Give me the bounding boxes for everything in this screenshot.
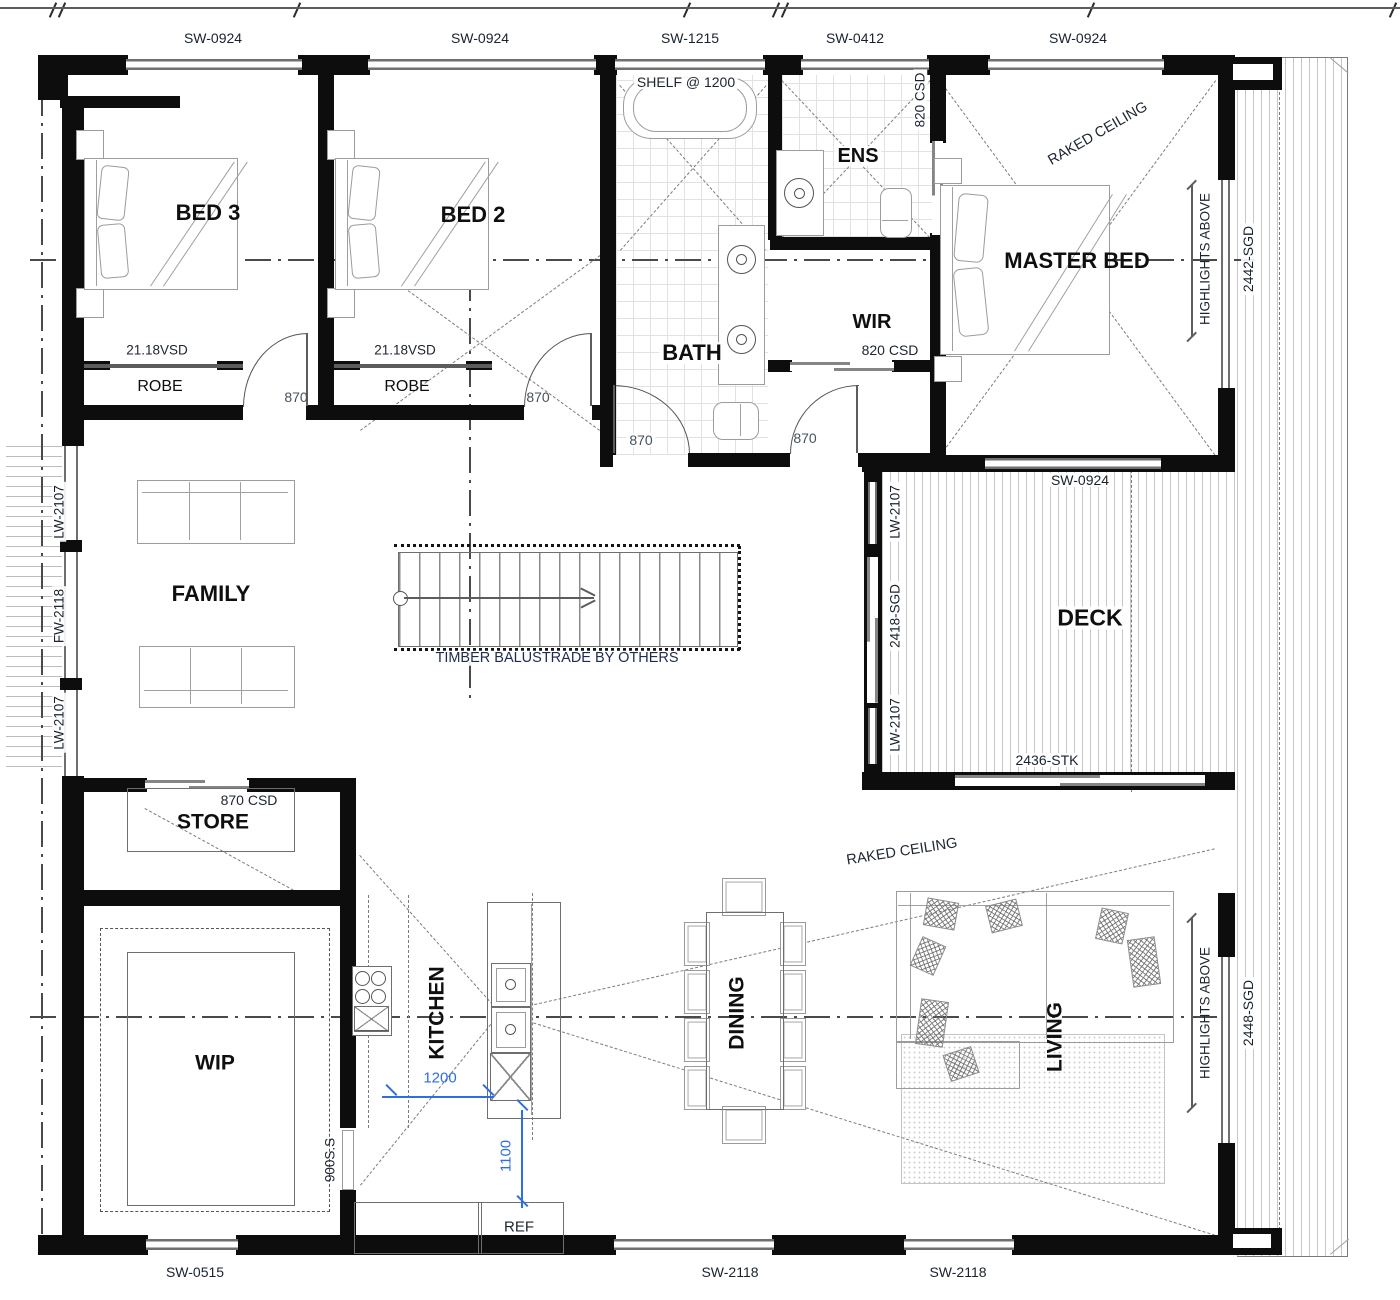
survey-tick <box>781 2 789 17</box>
deck-roofline <box>1131 460 1132 792</box>
basin-drain <box>736 254 747 265</box>
door-label: 820 CSD <box>913 70 927 131</box>
wall <box>930 75 946 143</box>
ss-bench-900 <box>342 1130 354 1190</box>
burner <box>355 971 370 986</box>
highlights-label: HIGHLIGHTS ABOVE <box>1198 193 1212 325</box>
sofa-back-line <box>142 492 288 493</box>
wall <box>1012 1235 1235 1255</box>
room-label-master: MASTER BED <box>1004 250 1149 272</box>
window-label: 2448-SGD <box>1241 977 1255 1049</box>
room-label-store: STORE <box>177 812 249 833</box>
dining-chair <box>722 878 766 916</box>
window-sw0515 <box>146 1239 238 1250</box>
door-label: 870 <box>626 433 655 447</box>
wall <box>770 237 934 250</box>
dim-line-1200 <box>382 1096 494 1098</box>
kitchen-bench <box>354 1202 482 1254</box>
wall <box>768 360 792 372</box>
door-leaf <box>856 385 858 453</box>
stacker-2436stk <box>955 775 1205 786</box>
window-lw2107-deck2 <box>868 708 877 764</box>
door-label: 820 CSD <box>862 343 919 357</box>
cooktop-front <box>354 1030 388 1031</box>
shelf-label: SHELF @ 1200 <box>634 75 738 89</box>
bedside-table <box>327 288 355 318</box>
window-sw1215 <box>615 59 765 70</box>
window-sw0924-3 <box>988 59 1164 70</box>
room-label-ens: ENS <box>834 146 881 166</box>
bedside-table <box>327 130 355 160</box>
raked-ceiling-label: RAKED CEILING <box>846 836 959 868</box>
wall <box>334 405 524 420</box>
survey-tick <box>772 2 780 17</box>
pillow <box>953 193 989 263</box>
vsd-label: 21.18VSD <box>126 343 188 357</box>
balustrade-end <box>738 546 741 650</box>
robe-label: ROBE <box>384 379 429 395</box>
floor-plan: BED 3 BED 2 BATH ENS WIR MASTER BED FAMI… <box>0 0 1400 1300</box>
ss-bench-label: 900S.S <box>323 1138 337 1182</box>
raked-ceiling-label: RAKED CEILING <box>1046 100 1150 169</box>
window-label: LW-2107 <box>888 695 902 755</box>
cooktop-oven <box>354 1006 389 1032</box>
sink-drain <box>505 979 516 990</box>
window-label: SW-2118 <box>701 1265 758 1279</box>
dim-line-1100 <box>521 1110 523 1208</box>
toilet-seat-line <box>882 220 908 221</box>
slider-2418sgd <box>867 557 878 703</box>
survey-tick <box>58 2 66 17</box>
room-label-kitchen: KITCHEN <box>427 966 448 1059</box>
wall <box>688 453 770 467</box>
window-label: LW-2107 <box>52 482 66 542</box>
room-label-family: FAMILY <box>172 583 251 605</box>
window-label: SW-0924 <box>184 31 242 45</box>
bedside-table <box>934 356 962 382</box>
dim-tick <box>386 1084 398 1096</box>
window-label: 2418-SGD <box>888 581 902 651</box>
wall <box>298 55 370 75</box>
window-sw2118-2 <box>904 1239 1014 1250</box>
window-sw2118-1 <box>614 1239 774 1250</box>
balustrade-note: TIMBER BALUSTRADE BY OTHERS <box>432 651 681 666</box>
window-label: SW-0924 <box>451 31 509 45</box>
window-label: SW-0924 <box>1048 473 1112 487</box>
door-leaf <box>613 385 615 453</box>
window-label: FW-2118 <box>52 586 66 646</box>
door-leaf <box>590 333 592 406</box>
door-label: 870 <box>793 431 816 445</box>
room-label-bath: BATH <box>659 342 724 364</box>
bed-headline <box>96 160 97 286</box>
bedside-table <box>76 288 104 318</box>
window-label: 2436-STK <box>1012 753 1081 767</box>
stair-arrow <box>404 597 594 599</box>
burner <box>371 989 386 1004</box>
window-label: SW-0515 <box>166 1265 224 1279</box>
sofa-back-line <box>144 690 288 691</box>
toilet-ens <box>880 188 912 238</box>
window-label: 2442-SGD <box>1241 223 1255 295</box>
sink-drain <box>505 1024 516 1035</box>
wall <box>763 55 803 75</box>
wall <box>38 55 68 100</box>
wall <box>927 55 990 75</box>
wall-sill <box>60 678 82 690</box>
wall <box>892 360 934 372</box>
sofa-divider <box>190 648 191 704</box>
wall <box>772 1235 906 1255</box>
wall <box>594 55 617 75</box>
wall <box>1218 893 1235 957</box>
basin-drain <box>736 334 747 345</box>
window-sw0412 <box>801 59 929 70</box>
window-sw0924-1 <box>126 59 302 70</box>
pillow <box>96 165 129 222</box>
wall <box>62 890 354 906</box>
room-label-wir: WIR <box>853 312 892 332</box>
family-sofa <box>139 646 295 708</box>
toilet-cistern <box>740 404 741 436</box>
window-label: LW-2107 <box>888 482 902 542</box>
wall <box>318 75 334 363</box>
wall <box>1218 388 1235 460</box>
pillow <box>348 223 381 279</box>
window-2442sgd <box>1221 180 1230 388</box>
burner <box>355 989 370 1004</box>
room-label-wip: WIP <box>195 1053 235 1074</box>
pillow <box>347 165 380 222</box>
bed-headline <box>952 187 953 351</box>
sofa-divider <box>240 482 241 540</box>
highlights-label: HIGHLIGHTS ABOVE <box>1198 947 1212 1079</box>
room-label-bed2: BED 2 <box>441 204 506 226</box>
dishwasher <box>490 1053 531 1101</box>
pier-inset <box>1233 64 1273 80</box>
room-label-dining: DINING <box>727 976 748 1050</box>
balustrade-top <box>394 544 740 547</box>
window-label: SW-0412 <box>826 31 884 45</box>
survey-tick <box>49 2 57 17</box>
window-label: SW-2118 <box>929 1265 986 1279</box>
wall <box>62 776 84 1238</box>
room-label-bed3: BED 3 <box>176 202 241 224</box>
kitchen-bench-line <box>408 895 409 1128</box>
pier-inset <box>1233 1234 1271 1248</box>
survey-tick <box>1087 2 1095 17</box>
cavity-slider-820-wir <box>790 362 894 371</box>
survey-line <box>0 7 1400 9</box>
highlight-bracket <box>1191 918 1193 1108</box>
wip-bench <box>127 952 295 1206</box>
bed-headline <box>347 160 348 286</box>
robe-vsd-track <box>334 364 492 368</box>
eave-line-left <box>41 90 43 1235</box>
dim-label-1100: 1100 <box>499 1140 514 1172</box>
door-label: 870 CSD <box>221 793 278 807</box>
island-divider <box>531 904 532 1115</box>
wall <box>306 405 334 420</box>
burner <box>371 971 386 986</box>
room-label-deck: DECK <box>1054 607 1125 630</box>
wall-sill <box>60 540 82 552</box>
door-label: 870 <box>284 390 307 404</box>
cushion <box>923 897 959 930</box>
bedside-table <box>76 130 104 160</box>
vsd-label: 21.18VSD <box>374 343 436 357</box>
window-sw0924-deck <box>985 458 1161 469</box>
family-sofa <box>137 480 295 544</box>
survey-tick <box>1389 2 1397 17</box>
room-label-living: LIVING <box>1045 1002 1066 1072</box>
sofa-divider <box>189 482 190 540</box>
window-lw2107-deck1 <box>868 482 877 544</box>
sofa-divider <box>241 648 242 704</box>
window-label: SW-0924 <box>1049 31 1107 45</box>
basin-drain <box>794 188 805 199</box>
dining-chair <box>722 1106 766 1144</box>
window-2448sgd <box>1221 957 1230 1143</box>
wall <box>38 1235 148 1255</box>
dim-label-1200: 1200 <box>423 1071 456 1086</box>
window-sw0924-2 <box>368 59 596 70</box>
wall <box>340 778 356 1128</box>
robe-label: ROBE <box>137 379 182 395</box>
survey-tick <box>293 2 301 17</box>
toilet-bath <box>713 402 759 440</box>
window-label: LW-2107 <box>52 693 66 753</box>
fridge-label: REF <box>504 1220 534 1235</box>
pillow <box>97 223 130 279</box>
wall <box>1218 1143 1235 1235</box>
door-label: 870 <box>526 390 549 404</box>
wall <box>600 453 613 467</box>
highlight-bracket <box>1191 185 1193 337</box>
bedside-table <box>934 158 962 184</box>
bathtub-inner <box>633 84 747 132</box>
eave-line-right <box>1279 57 1280 1255</box>
wall <box>62 405 243 420</box>
wall <box>1218 75 1235 180</box>
robe-vsd-track <box>84 364 243 368</box>
window-label: SW-1215 <box>661 31 719 45</box>
wall <box>763 453 790 467</box>
survey-tick <box>683 2 691 17</box>
staircase <box>398 552 738 647</box>
